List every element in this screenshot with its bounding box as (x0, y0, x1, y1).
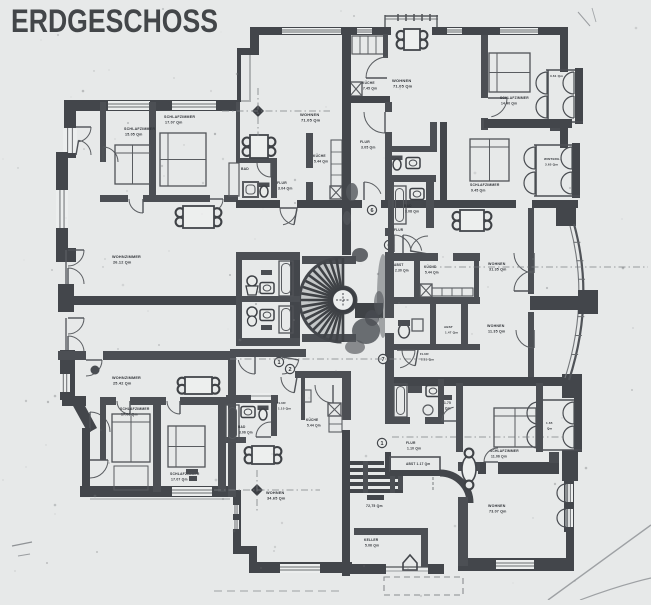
svg-text:SCHLAFZIMMER: SCHLAFZIMMER (120, 407, 150, 411)
svg-text:1.10 Qm: 1.10 Qm (407, 447, 421, 451)
svg-text:1.65: 1.65 (546, 421, 553, 425)
svg-text:FLUR: FLUR (406, 441, 416, 445)
svg-text:3.65 Qm: 3.65 Qm (545, 163, 558, 167)
svg-text:SCHLAFZIMMER: SCHLAFZIMMER (124, 127, 155, 131)
svg-text:ABST 1.17 Qm: ABST 1.17 Qm (406, 462, 430, 466)
svg-text:FLUR: FLUR (420, 352, 429, 356)
svg-text:FLUR: FLUR (277, 401, 286, 405)
svg-text:17.06 Qm: 17.06 Qm (121, 413, 138, 417)
svg-text:25.42 Qm: 25.42 Qm (113, 382, 132, 386)
svg-text:WOHNEN: WOHNEN (266, 491, 285, 495)
svg-text:34.65 Qm: 34.65 Qm (267, 497, 286, 501)
svg-text:1: 1 (380, 441, 383, 447)
svg-text:7: 7 (381, 357, 384, 363)
svg-text:SCHLAFZIMMER: SCHLAFZIMMER (164, 115, 195, 119)
svg-text:WOHNZIMMER: WOHNZIMMER (112, 255, 141, 259)
svg-text:1: 1 (277, 360, 280, 366)
svg-text:WOHNEN: WOHNEN (392, 78, 411, 83)
svg-text:5.44 Qm: 5.44 Qm (307, 424, 321, 428)
svg-text:WOHNEN: WOHNEN (488, 504, 506, 508)
svg-text:3.05 Qm: 3.05 Qm (361, 146, 376, 150)
svg-text:6: 6 (370, 208, 373, 214)
svg-text:BAD: BAD (404, 204, 412, 208)
svg-text:5.44 Qm: 5.44 Qm (425, 271, 439, 275)
svg-text:ERDGESCHOSS: ERDGESCHOSS (11, 3, 218, 39)
svg-text:72,75 Qm: 72,75 Qm (366, 504, 383, 508)
svg-text:11.35 Qm: 11.35 Qm (488, 330, 505, 334)
svg-text:71.05 Qm: 71.05 Qm (301, 118, 321, 123)
svg-text:17.07 Qm: 17.07 Qm (165, 121, 183, 125)
svg-text:FLUR: FLUR (277, 181, 287, 185)
svg-text:5.44 Qm: 5.44 Qm (314, 160, 328, 164)
svg-text:3.04 Qm: 3.04 Qm (278, 187, 293, 191)
svg-text:KÜCHE: KÜCHE (313, 154, 326, 158)
svg-text:KÜCHE: KÜCHE (306, 417, 318, 422)
svg-text:FLUR: FLUR (360, 140, 370, 144)
svg-text:3.08 Qm: 3.08 Qm (405, 210, 419, 214)
svg-text:31.35 Qm: 31.35 Qm (489, 268, 507, 272)
svg-text:1.10 Qm: 1.10 Qm (278, 407, 291, 411)
svg-text:2.30 Qm: 2.30 Qm (395, 269, 409, 273)
svg-text:3.61 Qm: 3.61 Qm (550, 74, 563, 78)
svg-text:71.05 Qm: 71.05 Qm (393, 84, 413, 89)
svg-text:7.45 Qm: 7.45 Qm (363, 87, 377, 91)
svg-text:WOHNEN: WOHNEN (300, 112, 319, 117)
svg-text:14.40 Qm: 14.40 Qm (501, 102, 517, 106)
svg-text:2: 2 (288, 367, 291, 373)
svg-text:SCHLAFZIMMER: SCHLAFZIMMER (490, 449, 519, 453)
svg-text:ABST: ABST (394, 263, 403, 267)
svg-text:BAD: BAD (238, 425, 246, 429)
svg-text:KÜCHE: KÜCHE (424, 264, 436, 269)
svg-text:WINTERG.: WINTERG. (544, 157, 561, 161)
svg-text:73.07 Qm: 73.07 Qm (489, 510, 507, 514)
svg-text:11.06 Qm: 11.06 Qm (491, 455, 507, 459)
svg-text:15.05 Qm: 15.05 Qm (125, 133, 143, 137)
svg-text:BAD: BAD (241, 167, 249, 171)
svg-text:KÜCHE: KÜCHE (362, 81, 375, 85)
svg-text:1.10 Qm: 1.10 Qm (421, 358, 434, 362)
svg-text:ABST: ABST (444, 325, 453, 329)
svg-text:26.12 Qm: 26.12 Qm (113, 261, 132, 265)
svg-text:KELLER: KELLER (364, 538, 379, 542)
svg-text:9.45 Qm: 9.45 Qm (471, 189, 486, 193)
svg-text:SCHLAFZIMMER: SCHLAFZIMMER (500, 96, 529, 100)
svg-text:SCHLAFZIMMER: SCHLAFZIMMER (470, 183, 500, 187)
svg-text:WOHNEN: WOHNEN (488, 262, 506, 266)
svg-text:FLUR: FLUR (394, 228, 404, 232)
svg-text:1.75: 1.75 (444, 401, 451, 405)
svg-text:Qm: Qm (547, 427, 553, 431)
svg-text:1.47 Qm: 1.47 Qm (445, 331, 458, 335)
svg-text:WOHNZIMMER: WOHNZIMMER (112, 376, 141, 380)
svg-text:WOHNEN: WOHNEN (487, 324, 505, 328)
svg-text:17.07 Qm: 17.07 Qm (171, 478, 188, 482)
svg-text:3.06 Qm: 3.06 Qm (239, 431, 253, 435)
svg-text:5.06 Qm: 5.06 Qm (365, 544, 379, 548)
